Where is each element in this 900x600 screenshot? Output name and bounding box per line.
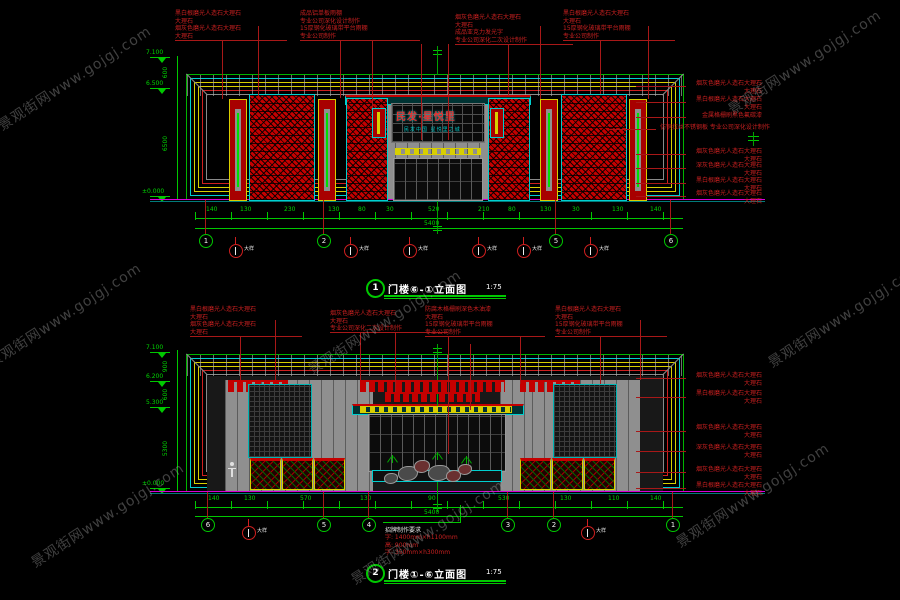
callout-line: 大理石 [690, 398, 762, 406]
dim-value: 140 [650, 495, 661, 502]
level-value: 6.500 [146, 80, 163, 87]
leader-line [425, 336, 545, 337]
leader-line [636, 168, 686, 169]
callout-line: 大理石 [175, 18, 241, 26]
callout-line: 大理石 [425, 314, 493, 322]
dim-value: 6500 [162, 136, 169, 151]
level-marker-icon [158, 382, 166, 387]
dim-value: 90 [428, 495, 436, 502]
leader-line [520, 336, 521, 384]
sconce-light [495, 112, 498, 133]
detail-marker-icon [584, 244, 598, 258]
callout-line: 大理石 [190, 314, 256, 322]
callout-line: 金属格栅刷黑色氟碳漆 [690, 112, 762, 120]
material-callout: 黑白根磨光人造石大理石 大理石 15厚钢化玻璃带平台雨棚 专业公司制作 [555, 306, 623, 336]
callout-line: 成品铝单板雨棚 [300, 10, 368, 18]
callout-line: 大理石 [690, 198, 762, 206]
leader-line [600, 40, 601, 94]
dim-value: 110 [608, 495, 619, 502]
dim-value: 140 [650, 206, 661, 213]
leader-line [636, 196, 686, 197]
dimension-line [177, 56, 178, 199]
leader-line [508, 44, 509, 96]
callout-line: 大理石 [690, 170, 762, 178]
planter-box [314, 458, 345, 490]
callout-line: 成品亚克力发光字 [455, 29, 527, 37]
material-callout: 烟灰色磨光人造石大理石大理石 [690, 148, 762, 163]
callout-line: 大理石 [555, 314, 623, 322]
lamp-bar-icon [548, 113, 550, 187]
dimension-line [195, 507, 683, 508]
dim-value: 600 [162, 67, 169, 78]
material-callout: 黑白根磨光人造石大理石 大理石 15厚钢化玻璃带平台雨棚 专业公司制作 [563, 10, 631, 40]
sconce-light [377, 112, 380, 133]
ground-line-2 [150, 201, 765, 202]
lamp-pilaster [540, 99, 558, 201]
callout-line: 防腐木格栅刷深色木油漆 [425, 306, 493, 314]
detail-marker-label: 大样 [596, 528, 606, 534]
callout-line: 黑白根磨光人造石大理石 [190, 306, 256, 314]
material-callout: 烟灰色磨光人造石大理石大理石 [690, 466, 762, 481]
callout-line: 大理石 [455, 22, 527, 30]
fretwork-band [385, 392, 480, 402]
grid-bubble: 4 [362, 518, 376, 532]
callout-line: 烟灰色磨光人造石大理石 [690, 190, 762, 198]
material-callout: 烟灰色磨光人造石大理石 大理石 成品亚克力发光字 专业公司深化二次设计制作 [455, 14, 527, 44]
grid-line [368, 492, 369, 518]
grid-line [205, 200, 206, 234]
detail-marker-icon [472, 244, 486, 258]
material-callout: 烟灰色磨光人造石大理石大理石 [690, 372, 762, 387]
person-head [230, 462, 234, 466]
lamp-pilaster [318, 99, 336, 201]
callout-line: 深灰色磨光人造石大理石 [690, 444, 762, 452]
leader-line [258, 26, 259, 96]
leader-line [636, 472, 686, 473]
scale-label: 1:75 [486, 283, 502, 291]
material-callout: 烟灰色磨光人造石大理石大理石 [690, 424, 762, 439]
callout-line: 大理石 [690, 452, 762, 460]
gate-grille [393, 158, 483, 201]
dim-value: 210 [478, 206, 489, 213]
detail-marker-label: 大样 [359, 246, 369, 252]
detail-marker-icon [517, 244, 531, 258]
level-value: ±0.000 [142, 188, 164, 195]
level-value: 6.200 [146, 373, 163, 380]
dim-value: 600 [162, 389, 169, 400]
leader-line [448, 336, 449, 454]
coping-tick-marks [187, 355, 683, 376]
lattice-window [248, 384, 312, 458]
callout-line: 专业公司制作 [555, 329, 623, 337]
grid-bubble: 3 [501, 518, 515, 532]
callout-line: 烟灰色磨光人造石大理石 [690, 372, 762, 380]
detail-marker-icon [403, 244, 417, 258]
level-marker-icon [158, 353, 166, 358]
dim-value: 130 [360, 495, 371, 502]
level-marker-icon [158, 89, 166, 94]
dim-value: 900 [162, 361, 169, 372]
leader-line [636, 397, 686, 398]
grid-bubble: 5 [317, 518, 331, 532]
drawing-number-badge: 1 [366, 279, 385, 298]
leader-line [540, 26, 541, 99]
yellow-trim-strip [360, 406, 512, 413]
planter-box [520, 458, 551, 490]
lamp-pilaster [229, 99, 247, 201]
callout-line: 黑白根磨光人造石大理石 [690, 390, 762, 398]
leader-line [190, 336, 302, 337]
elevation-2: 黑白根磨光人造石大理石 大理石 烟灰色磨光人造石大理石 大理石 烟灰色磨光人造石… [0, 300, 900, 600]
level-value: 5.300 [146, 399, 163, 406]
grid-bubble: 1 [199, 234, 213, 248]
fretwork-band [360, 380, 505, 392]
scale-label: 1:75 [486, 568, 502, 576]
leader-line [636, 154, 686, 155]
leader-line [640, 320, 641, 380]
leader-line [636, 378, 686, 379]
dim-value: 130 [328, 206, 339, 213]
callout-line: 15厚钢化玻璃带平台雨棚 [300, 25, 368, 33]
planter-box [282, 458, 313, 490]
planter-box [250, 458, 281, 490]
callout-line: 15厚钢化玻璃带平台雨棚 [555, 321, 623, 329]
grid-line [507, 492, 508, 518]
callout-line: 黑白根磨光人造石大理石 [690, 177, 762, 185]
callout-line: 大理石 [690, 380, 762, 388]
callout-line: 烟灰色磨光人造石大理石 [455, 14, 527, 22]
sign-main-text: 民发·星悦里 [396, 108, 456, 123]
yellow-trim-strip [395, 148, 481, 155]
leader-line [648, 26, 649, 99]
callout-line: 烟灰色磨光人造石大理石 [690, 466, 762, 474]
leader-line [636, 431, 686, 432]
coping-tick-marks [187, 75, 683, 96]
dim-value: 140 [208, 495, 219, 502]
lamp-bar-icon [237, 113, 239, 187]
level-marker-icon [158, 58, 166, 63]
sign-sub-text: 民发中国 星悦里之城 [404, 126, 461, 133]
detail-marker-label: 大样 [532, 246, 542, 252]
detail-marker-label: 大样 [257, 528, 267, 534]
callout-line: 大理石 [690, 474, 762, 482]
level-marker-icon [158, 408, 166, 413]
grid-line [555, 200, 556, 234]
wall-sconce-icon [372, 108, 386, 138]
callout-line: 专业公司制作 [425, 329, 493, 337]
planter-box [552, 458, 583, 490]
lamp-pilaster [629, 99, 647, 201]
material-callout: 防腐木格栅刷深色木油漆 大理石 15厚钢化玻璃带平台雨棚 专业公司制作 [425, 306, 493, 336]
callout-line: 黑白根磨光人造石大理石 [175, 10, 241, 18]
dim-value: 130 [560, 495, 571, 502]
lamp-bar-icon [326, 113, 328, 187]
plant-icon [437, 452, 438, 460]
detail-marker-label: 大样 [244, 246, 254, 252]
dim-value: 130 [612, 206, 623, 213]
grid-line [323, 492, 324, 518]
grid-bubble: 2 [547, 518, 561, 532]
grid-line [672, 492, 673, 518]
grid-bubble: 6 [201, 518, 215, 532]
leader-line [372, 40, 373, 108]
leader-line [340, 40, 341, 98]
callout-line: 大理石 [175, 33, 241, 41]
axis-line [753, 132, 754, 146]
callout-line: 15厚钢化玻璃带平台雨棚 [563, 25, 631, 33]
detail-marker-icon [344, 244, 358, 258]
leader-line [300, 40, 420, 41]
leader-line [636, 451, 686, 452]
level-value: 7.100 [146, 49, 163, 56]
leader-line [555, 336, 667, 337]
grid-line [670, 200, 671, 234]
leader-line [600, 336, 601, 384]
callout-line: 专业公司制作 [563, 33, 631, 41]
plant-icon [392, 455, 393, 463]
callout-line: 大理石 [190, 329, 256, 337]
dim-value: 80 [358, 206, 366, 213]
material-callout: 成品铝单板雨棚 专业公司深化设计制作 15厚钢化玻璃带平台雨棚 专业公司制作 [300, 10, 368, 40]
grid-line [323, 200, 324, 234]
dimension-line [195, 228, 683, 229]
detail-marker-icon [229, 244, 243, 258]
callout-line: 专业公司深化二次设计制作 [455, 37, 527, 45]
lamp-bar-icon [637, 113, 639, 187]
callout-line: 烟灰色磨光人造石大理石 [690, 424, 762, 432]
callout-line: 15厚钢化玻璃带平台雨棚 [425, 321, 493, 329]
callout-line: 大理石 [690, 432, 762, 440]
leader-line [610, 129, 656, 130]
leader-line [563, 40, 675, 41]
gate-grille [368, 414, 506, 472]
material-callout: 黑白根磨光人造石大理石 大理石 烟灰色磨光人造石大理石 大理石 [175, 10, 241, 40]
leader-line [636, 117, 686, 118]
callout-line: 黑白根磨光人造石大理石 [563, 10, 631, 18]
title-underline [384, 583, 506, 584]
detail-marker-icon [242, 526, 256, 540]
detail-marker-icon [581, 526, 595, 540]
dim-value: 140 [206, 206, 217, 213]
dim-value: 130 [244, 495, 255, 502]
leader-line [455, 44, 573, 45]
dim-value: 30 [386, 206, 394, 213]
leader-line [275, 320, 276, 380]
dim-value: 30 [572, 206, 580, 213]
detail-marker-label: 大样 [599, 246, 609, 252]
dim-value: 80 [508, 206, 516, 213]
material-callout: 黑白根磨光人造石大理石 大理石 烟灰色磨光人造石大理石 大理石 [190, 306, 256, 336]
ornament-panel [249, 94, 315, 201]
grid-bubble: 2 [317, 234, 331, 248]
planter-box [584, 458, 615, 490]
callout-line: 烟灰色磨光人造石大理石 [190, 321, 256, 329]
lattice-window [553, 384, 617, 458]
plant-icon [466, 456, 467, 464]
dimension-line [195, 218, 683, 219]
callout-line: 专业公司制作 [300, 33, 368, 41]
material-callout: 金属格栅刷黑色氟碳漆 [690, 112, 762, 120]
callout-line: 仿铜拉丝不锈钢板 专业公司深化设计制作 [660, 124, 762, 132]
leader-line [421, 44, 422, 140]
material-callout: 烟灰色磨光人造石大理石大理石 [690, 190, 762, 205]
leader-line [240, 336, 241, 380]
callout-line: 专业公司深化设计制作 [300, 18, 368, 26]
material-callout: 深灰色磨光人造石大理石大理石 [690, 444, 762, 459]
leader-line [636, 86, 686, 87]
grid-bubble: 6 [664, 234, 678, 248]
drawing-title: 门楼①-⑥立面图 [388, 566, 467, 581]
grid-line [553, 492, 554, 518]
material-callout: 仿铜拉丝不锈钢板 专业公司深化设计制作 [660, 124, 762, 132]
leader-line [222, 40, 223, 99]
ornament-panel [561, 94, 627, 201]
dim-value: 570 [300, 495, 311, 502]
callout-line: 黑白根磨光人造石大理石 [555, 306, 623, 314]
grid-bubble: 5 [549, 234, 563, 248]
leader-line [175, 40, 287, 41]
wall-sconce-icon [490, 108, 504, 138]
dim-value: 5300 [162, 441, 169, 456]
dim-value: 130 [540, 206, 551, 213]
detail-marker-label: 大样 [487, 246, 497, 252]
callout-line: 深灰色磨光人造石大理石 [690, 162, 762, 170]
leader-line [636, 102, 686, 103]
callout-line: 烟灰色磨光人造石大理石 [690, 148, 762, 156]
detail-marker-label: 大样 [418, 246, 428, 252]
leader-line [636, 488, 686, 489]
level-value: 7.100 [146, 344, 163, 351]
callout-line: 大理石 [563, 18, 631, 26]
callout-line: 烟灰色磨光人造石大理石 [175, 25, 241, 33]
person-icon [227, 462, 237, 484]
axis-line [437, 200, 438, 234]
cad-canvas: 景观街网www.gojgj.com 景观街网www.gojgj.com 景观街网… [0, 0, 900, 600]
leader-line [395, 332, 396, 392]
leader-line [636, 183, 686, 184]
axis-line [437, 46, 438, 75]
grid-line [207, 492, 208, 518]
dim-value: 230 [284, 206, 295, 213]
material-callout: 深灰色磨光人造石大理石大理石 [690, 162, 762, 177]
leader-line [448, 44, 449, 140]
person-body [231, 468, 233, 477]
leader-line [470, 344, 471, 410]
material-callout: 黑白根磨光人造石大理石大理石 [690, 390, 762, 405]
dim-value: 130 [240, 206, 251, 213]
